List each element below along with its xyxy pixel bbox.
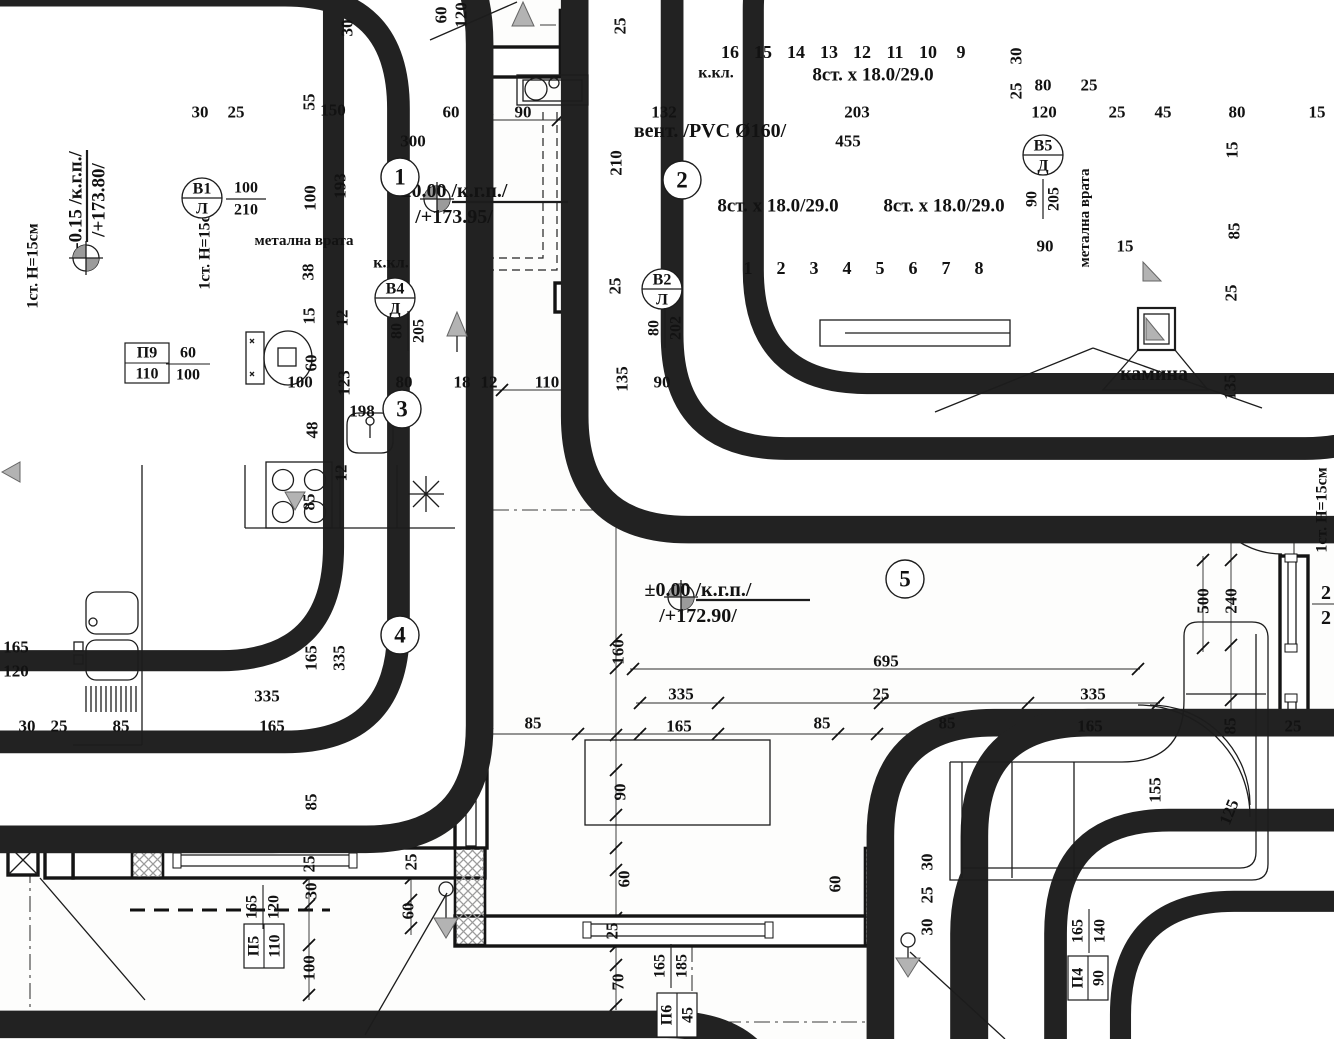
svg-text:60: 60 bbox=[180, 345, 196, 362]
dimension-label: 25 bbox=[1081, 76, 1098, 95]
dimension-label: 38 bbox=[299, 264, 318, 281]
level-text: -0.15 /к.г.п./ bbox=[66, 151, 87, 249]
dimension-label: 85 bbox=[113, 717, 130, 736]
dimension-label: 30 bbox=[338, 20, 357, 37]
level-text: ±0.00 /к.г.п./ bbox=[645, 579, 752, 601]
dimension-label: 335 bbox=[1080, 685, 1106, 704]
svg-text:В5: В5 bbox=[1034, 138, 1053, 155]
dimension-label: 45 bbox=[1155, 103, 1172, 122]
dimension-label: 80 bbox=[1229, 103, 1246, 122]
dimension-label: 55 bbox=[300, 94, 319, 111]
window-tag-values: 165120 bbox=[244, 885, 283, 929]
svg-text:120: 120 bbox=[266, 895, 283, 919]
flight-label: 8ст. x 18.0/29.0 bbox=[717, 196, 838, 217]
section-mark: 2 bbox=[1321, 582, 1331, 604]
svg-text:210: 210 bbox=[234, 202, 258, 219]
dimension-label: 90 bbox=[515, 103, 532, 122]
dimension-label: 12 bbox=[332, 465, 351, 482]
dimension-label: 25 bbox=[611, 18, 630, 35]
stair-tread-number: 7 bbox=[942, 258, 951, 278]
dimension-label: 30 bbox=[918, 919, 937, 936]
svg-text:202: 202 bbox=[668, 316, 685, 340]
svg-text:100: 100 bbox=[234, 180, 258, 197]
svg-text:165: 165 bbox=[652, 954, 669, 978]
dimension-label: 132 bbox=[651, 103, 677, 122]
stair-tread-number: 5 bbox=[876, 258, 885, 278]
room-number: 1 bbox=[381, 158, 419, 196]
furniture bbox=[0, 0, 1334, 1039]
dimension-label: 30 bbox=[1007, 48, 1026, 65]
dimension-label: 25 bbox=[228, 103, 245, 122]
dimension-label: 695 bbox=[873, 652, 899, 671]
dimension-label: 165 bbox=[1077, 717, 1103, 736]
dimension-label: 60 bbox=[443, 103, 460, 122]
stair-tread-number: 2 bbox=[777, 258, 786, 278]
svg-text:П6: П6 bbox=[659, 1005, 676, 1025]
dimension-label: 15 bbox=[1223, 142, 1242, 159]
svg-text:165: 165 bbox=[244, 895, 261, 919]
stair-core-label: к.кл. bbox=[698, 65, 733, 82]
window-tag: П9110 bbox=[125, 343, 169, 383]
dimension-label: 455 bbox=[835, 132, 861, 151]
dimension-label: 90 bbox=[1037, 237, 1054, 256]
dimension-label: 198 bbox=[349, 402, 375, 421]
fridge-snowflake-icon bbox=[408, 476, 444, 512]
stair-tread-number: 12 bbox=[853, 42, 871, 62]
dimension-label: 85 bbox=[1225, 223, 1244, 240]
dimension-label: 60 bbox=[399, 903, 418, 920]
svg-text:90: 90 bbox=[1024, 191, 1041, 207]
svg-text:Д: Д bbox=[1037, 158, 1048, 175]
dimension-label: 335 bbox=[254, 687, 280, 706]
chair bbox=[575, 0, 1334, 530]
dimension-label: 203 bbox=[844, 103, 870, 122]
svg-text:110: 110 bbox=[267, 934, 284, 957]
dimension-label: 60 bbox=[432, 7, 451, 24]
svg-text:2: 2 bbox=[676, 168, 688, 193]
dimension-label: 25 bbox=[918, 887, 937, 904]
svg-text:В1: В1 bbox=[193, 181, 212, 198]
dimension-label: 25 bbox=[603, 923, 622, 940]
dimension-label: 300 bbox=[400, 132, 426, 151]
dimension-label: 48 bbox=[303, 422, 322, 439]
svg-text:1: 1 bbox=[394, 165, 406, 190]
dimension-label: 335 bbox=[668, 685, 694, 704]
dimension-label: 60 bbox=[302, 355, 321, 372]
dimension-label: 85 bbox=[939, 714, 956, 733]
stair-tread-number: 8 bbox=[975, 258, 984, 278]
stair-tread-number: 15 bbox=[754, 42, 772, 62]
svg-text:45: 45 bbox=[680, 1007, 697, 1023]
dimension-label: 335 bbox=[330, 645, 349, 671]
step-note: 1ст. Н=15см bbox=[25, 223, 42, 308]
flight-label: 8ст. x 18.0/29.0 bbox=[883, 196, 1004, 217]
stair-tread-number: 14 bbox=[787, 42, 805, 62]
level-text: /+172.90/ bbox=[658, 605, 737, 627]
dimension-label: 135 bbox=[613, 366, 632, 392]
dimension-label: 70 bbox=[609, 974, 628, 991]
svg-text:80: 80 bbox=[389, 323, 406, 339]
dimension-label: 30 bbox=[19, 717, 36, 736]
stair-tread-number: 13 bbox=[820, 42, 838, 62]
svg-text:90: 90 bbox=[1091, 970, 1108, 986]
svg-text:140: 140 bbox=[1092, 919, 1109, 943]
dimension-label: 210 bbox=[607, 150, 626, 176]
room-number: 4 bbox=[381, 616, 419, 654]
dimension-label: 90 bbox=[654, 373, 671, 392]
dimension-label: 85 bbox=[525, 714, 542, 733]
svg-text:Д: Д bbox=[389, 301, 400, 318]
dimension-label: 123 bbox=[335, 370, 354, 396]
dimension-label: 135 bbox=[1221, 374, 1240, 400]
dimension-label: 25 bbox=[300, 856, 319, 873]
svg-text:185: 185 bbox=[674, 954, 691, 978]
step-note: 1ст. Н=15см bbox=[1314, 467, 1331, 552]
svg-text:В4: В4 bbox=[386, 281, 405, 298]
dimension-label: 165 bbox=[3, 638, 29, 657]
metal-door-label: метална врата bbox=[255, 233, 354, 249]
dimension-label: 100 bbox=[287, 373, 313, 392]
svg-text:В2: В2 bbox=[653, 272, 672, 289]
dimension-label: 15 bbox=[300, 308, 319, 325]
dimension-label: 500 bbox=[1194, 588, 1213, 614]
dimension-label: 30 bbox=[302, 883, 321, 900]
dimension-label: 85 bbox=[300, 494, 319, 511]
dimension-label: 25 bbox=[873, 685, 890, 704]
level-text: /+173.80/ bbox=[89, 162, 110, 237]
dimension-label: 80 bbox=[1035, 76, 1052, 95]
svg-text:110: 110 bbox=[135, 366, 158, 383]
stair-tread-number: 6 bbox=[909, 258, 918, 278]
dimension-label: 165 bbox=[302, 645, 321, 671]
dimension-label: 90 bbox=[611, 784, 630, 801]
dimension-label: 25 bbox=[1222, 285, 1241, 302]
dimension-label: 150 bbox=[320, 101, 346, 120]
window-tag-values: 165185 bbox=[652, 944, 691, 988]
dimension-label: 12 bbox=[333, 310, 352, 327]
window-tag: П490 bbox=[1068, 956, 1108, 1000]
dimension-label: 165 bbox=[666, 717, 692, 736]
stair-core-label: к.кл. bbox=[373, 255, 408, 272]
dimension-label: 25 bbox=[1109, 103, 1126, 122]
dimension-label: 85 bbox=[1221, 718, 1240, 735]
stair-tread-number: 9 bbox=[957, 42, 966, 62]
room-number: 2 bbox=[663, 161, 701, 199]
svg-text:205: 205 bbox=[411, 319, 428, 343]
dimension-label: 15 bbox=[1117, 237, 1134, 256]
dimension-label: 100 bbox=[301, 185, 320, 211]
window-tag: П5110 bbox=[244, 924, 284, 968]
level-marker: ±0.00 /к.г.п./ /+172.90/ bbox=[645, 579, 810, 627]
svg-text:100: 100 bbox=[176, 367, 200, 384]
dimension-label: 80 bbox=[396, 373, 413, 392]
section-mark: 2 bbox=[1321, 607, 1331, 629]
dimension-label: 85 bbox=[814, 714, 831, 733]
dimension-label: 120 bbox=[3, 662, 29, 681]
dimension-label: 60 bbox=[826, 876, 845, 893]
dimension-label: 12 bbox=[481, 373, 498, 392]
room-number: 5 bbox=[886, 560, 924, 598]
svg-text:Л: Л bbox=[196, 201, 208, 218]
room-number: 3 bbox=[383, 390, 421, 428]
svg-text:3: 3 bbox=[396, 397, 408, 422]
dimension-label: 100 bbox=[300, 955, 319, 981]
floor-plan-page: ±0.00 /к.г.п./ /+173.95/ ±0.00 /к.г.п./ … bbox=[0, 0, 1334, 1039]
dimension-label: 120 bbox=[452, 2, 471, 28]
dimension-label: 193 bbox=[331, 173, 350, 199]
dimension-label: 18 bbox=[454, 373, 471, 392]
stair-tread-number: 1 bbox=[744, 258, 753, 278]
svg-text:П5: П5 bbox=[246, 936, 263, 956]
vent-label: вент. /PVC Ø160/ bbox=[634, 120, 787, 142]
dimension-label: 30 bbox=[918, 854, 937, 871]
dimension-label: 160 bbox=[609, 639, 628, 665]
dimension-label: 25 bbox=[606, 278, 625, 295]
dimension-label: 25 bbox=[1007, 83, 1026, 100]
flight-label: 8ст. x 18.0/29.0 bbox=[812, 65, 933, 86]
chair bbox=[974, 723, 1334, 1039]
stair-tread-number: 4 bbox=[843, 258, 852, 278]
svg-text:4: 4 bbox=[394, 623, 406, 648]
stair-tread-number: 10 bbox=[919, 42, 937, 62]
metal-door-label: метална врата bbox=[1077, 168, 1093, 267]
dimension-label: 240 bbox=[1222, 588, 1241, 614]
dimension-label: 15 bbox=[1309, 103, 1326, 122]
dimension-label: 120 bbox=[1031, 103, 1057, 122]
dimension-label: 165 bbox=[259, 717, 285, 736]
dimension-label: 25 bbox=[1285, 717, 1302, 736]
stair-tread-number: 16 bbox=[721, 42, 739, 62]
dimension-label: 25 bbox=[51, 717, 68, 736]
level-text: /+173.95/ bbox=[414, 206, 493, 228]
svg-text:80: 80 bbox=[646, 320, 663, 336]
svg-text:П4: П4 bbox=[1070, 968, 1087, 988]
arrow-up-icon bbox=[512, 2, 534, 26]
svg-text:П9: П9 bbox=[137, 345, 157, 362]
dimension-label: 85 bbox=[302, 794, 321, 811]
dimension-label: 110 bbox=[535, 373, 560, 392]
fireplace-label: камина bbox=[1120, 363, 1188, 385]
dimension-label: 30 bbox=[192, 103, 209, 122]
dimension-label: 155 bbox=[1146, 777, 1165, 803]
window-tag: П645 bbox=[657, 993, 697, 1037]
stair-tread-number: 3 bbox=[810, 258, 819, 278]
svg-text:165: 165 bbox=[1070, 919, 1087, 943]
svg-text:Л: Л bbox=[656, 292, 668, 309]
svg-text:5: 5 bbox=[899, 567, 911, 592]
dimension-label: 25 bbox=[402, 854, 421, 871]
dimension-label: 60 bbox=[615, 871, 634, 888]
dining-table bbox=[585, 740, 770, 825]
stair-tread-number: 11 bbox=[886, 42, 903, 62]
svg-text:205: 205 bbox=[1046, 187, 1063, 211]
floor-plan-drawing: ±0.00 /к.г.п./ /+173.95/ ±0.00 /к.г.п./ … bbox=[0, 0, 1334, 1039]
